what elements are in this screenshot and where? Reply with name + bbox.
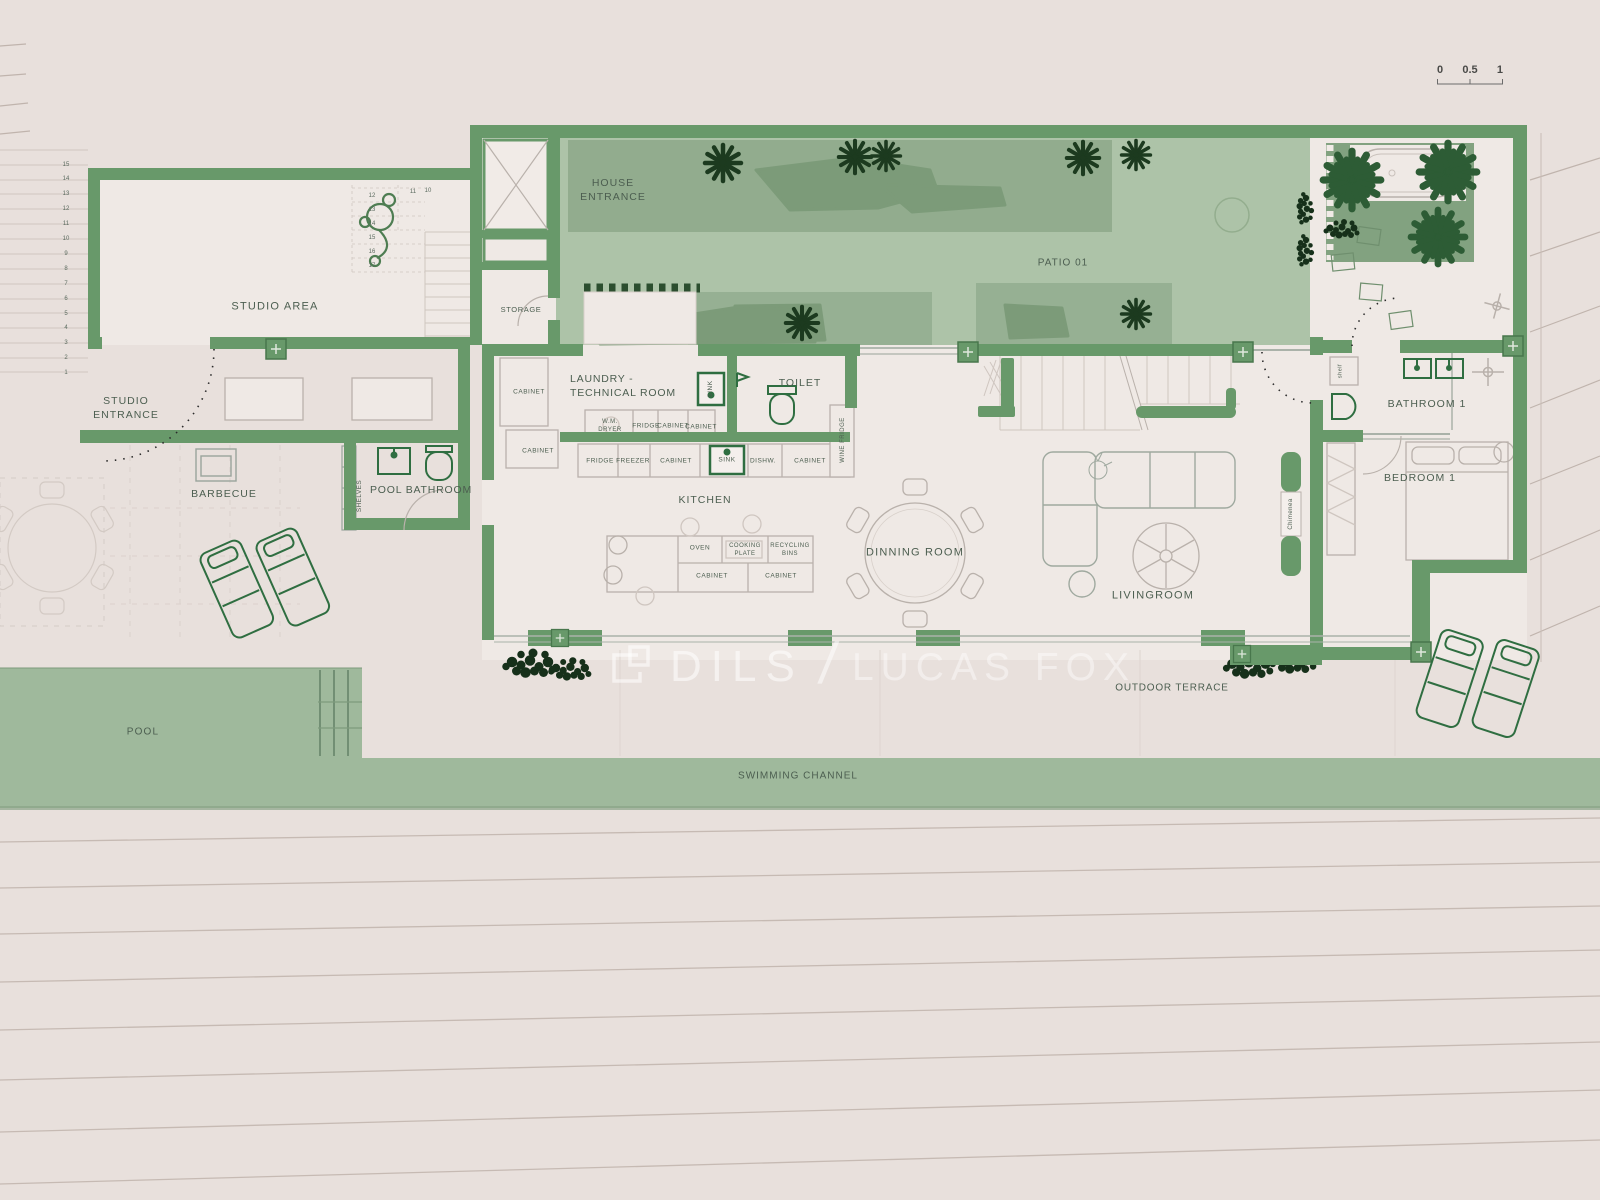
floor-plan-page: STUDIO AREASTUDIO ENTRANCEBARBECUESHELVE… (0, 0, 1600, 1200)
watermark-brand-right: LUCAS FOX (852, 648, 1136, 687)
dils-logo-icon (608, 642, 654, 693)
kitchen-sink (710, 446, 744, 474)
watermark-divider: / (816, 635, 840, 693)
studio-desk (225, 378, 303, 420)
studio-desk (352, 378, 432, 420)
studio-entrance-door-swing (102, 349, 214, 461)
scale-bar-ruler-icon (1437, 78, 1503, 85)
scale-tick-1: 1 (1497, 64, 1503, 76)
elevator-shaft (484, 140, 548, 262)
floor-plan-drawing (0, 0, 1600, 1200)
watermark-brand-left: DILS (670, 645, 804, 689)
patio-bench (584, 292, 696, 344)
scale-bar-numbers: 0 0.5 1 (1437, 64, 1503, 76)
fireplace-chimenea (1281, 452, 1301, 576)
watermark: DILS / LUCAS FOX (608, 638, 1136, 696)
scale-bar: 0 0.5 1 (1437, 64, 1503, 85)
scale-tick-0: 0 (1437, 64, 1443, 76)
pool-bath-toilet (426, 446, 452, 480)
outdoor-dining-set (0, 445, 300, 640)
pool-bath-sink (378, 448, 410, 474)
barbecue-counter (196, 449, 236, 481)
side-table (1069, 571, 1095, 597)
laundry-sink (698, 373, 724, 405)
exterior-stairs-left (0, 150, 88, 372)
scale-tick-half: 0.5 (1462, 64, 1477, 76)
